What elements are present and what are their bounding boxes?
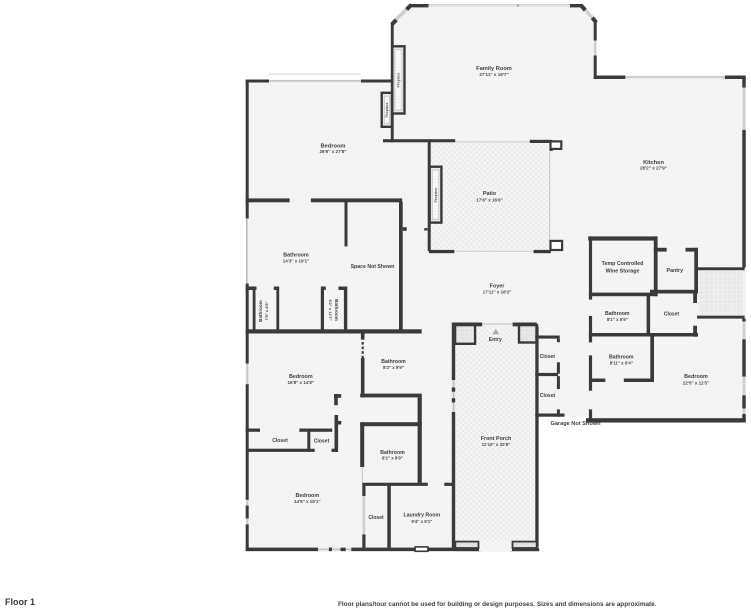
svg-text:Bathroom: Bathroom	[334, 299, 339, 321]
svg-text:14′9″ x 18′1″: 14′9″ x 18′1″	[294, 499, 321, 504]
svg-text:Closet: Closet	[540, 354, 556, 360]
svg-text:7′5″ x 4′6″: 7′5″ x 4′6″	[264, 301, 269, 320]
svg-text:Pantry: Pantry	[667, 268, 684, 274]
svg-text:Fireplace: Fireplace	[385, 102, 389, 117]
svg-text:Fireplace: Fireplace	[434, 187, 438, 202]
svg-text:Entry: Entry	[489, 337, 502, 343]
svg-text:Space Not Shown: Space Not Shown	[351, 264, 395, 270]
svg-text:28′2″ x 27′9″: 28′2″ x 27′9″	[640, 166, 668, 171]
svg-text:Family Room: Family Room	[476, 66, 512, 72]
svg-text:Laundry Room: Laundry Room	[403, 513, 440, 519]
svg-text:Bathroom: Bathroom	[283, 253, 309, 259]
svg-text:11′10″ x 32′8″: 11′10″ x 32′8″	[482, 442, 512, 447]
svg-text:16′8″ x 14′8″: 16′8″ x 14′8″	[288, 380, 315, 385]
svg-text:Temp Controlled: Temp Controlled	[602, 261, 644, 267]
svg-text:Patio: Patio	[483, 191, 497, 197]
svg-text:Closet: Closet	[272, 438, 288, 444]
svg-text:Foyer: Foyer	[490, 283, 506, 289]
svg-text:Closet: Closet	[664, 311, 680, 317]
svg-text:Garage Not Shown: Garage Not Shown	[550, 421, 601, 427]
svg-text:Bedroom: Bedroom	[684, 374, 708, 380]
svg-text:8′2″ x 9′9″: 8′2″ x 9′9″	[383, 365, 405, 370]
svg-text:9′4″ x 9′1″: 9′4″ x 9′1″	[411, 519, 433, 524]
svg-text:Bedroom: Bedroom	[295, 493, 319, 499]
svg-text:Fireplace: Fireplace	[397, 72, 401, 87]
svg-text:14′3″ x 19′1″: 14′3″ x 19′1″	[283, 259, 310, 264]
svg-text:Wine Storage: Wine Storage	[606, 268, 640, 274]
svg-text:6′2″ x 11′7″: 6′2″ x 11′7″	[328, 299, 333, 320]
svg-text:8′1″ x 8′9″: 8′1″ x 8′9″	[382, 456, 404, 461]
svg-text:22′5″ x 11′5″: 22′5″ x 11′5″	[683, 381, 710, 386]
svg-text:17′11″ x 18′2″: 17′11″ x 18′2″	[483, 290, 513, 295]
svg-text:8′11″ x 6′4″: 8′11″ x 6′4″	[610, 360, 634, 365]
svg-text:Front Porch: Front Porch	[481, 436, 512, 442]
svg-text:Closet: Closet	[368, 515, 384, 521]
svg-text:27′11″ x 19′7″: 27′11″ x 19′7″	[479, 72, 509, 77]
svg-text:8′1″ x 6′9″: 8′1″ x 6′9″	[607, 317, 629, 322]
svg-text:28′6″ x 27′8″: 28′6″ x 27′8″	[319, 149, 347, 154]
svg-text:17′6″ x 16′6″: 17′6″ x 16′6″	[476, 197, 503, 202]
svg-text:Bathroom: Bathroom	[258, 300, 263, 322]
svg-text:Closet: Closet	[314, 438, 330, 444]
svg-text:Closet: Closet	[540, 393, 556, 399]
